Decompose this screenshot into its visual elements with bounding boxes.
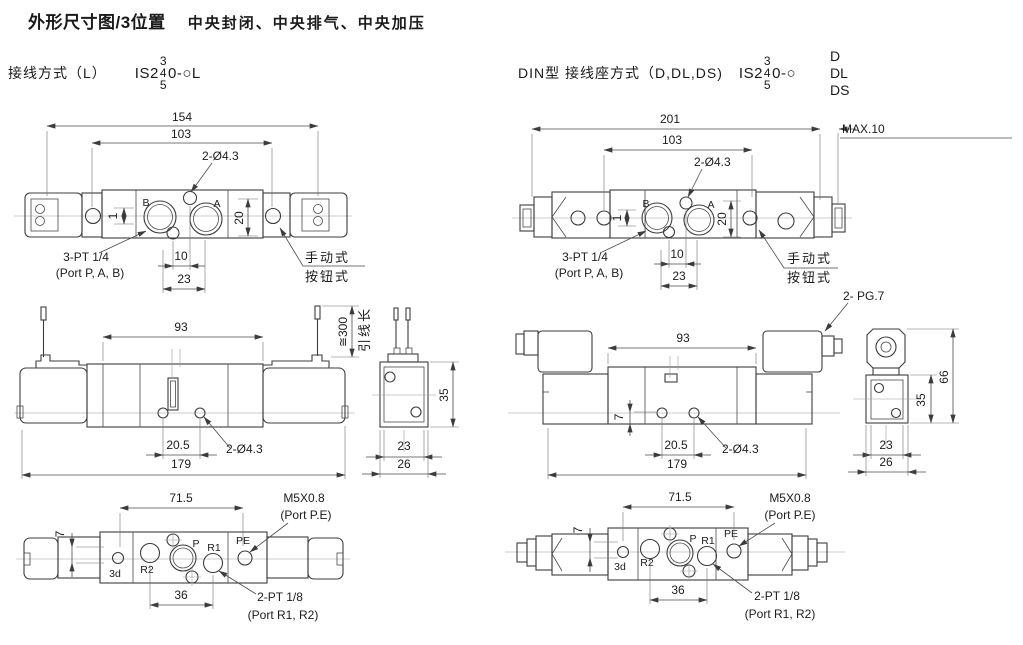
dim-93: 93 — [608, 331, 756, 364]
svg-text:按钮式: 按钮式 — [787, 270, 832, 285]
bottom-view-l-type: 3d R2 P R1 PE 71.5 M5X0.8 (Port P.E) 7 — [16, 491, 350, 622]
valve-body-top-l — [25, 190, 347, 238]
dim-179: 179 — [22, 426, 345, 479]
body-details — [17, 364, 348, 427]
svg-text:35: 35 — [437, 388, 451, 402]
svg-text:93: 93 — [676, 331, 690, 345]
port-b-label: B — [142, 197, 149, 209]
svg-text:7: 7 — [53, 530, 67, 537]
bottom-ports — [618, 528, 742, 577]
dim-93: 93 — [103, 320, 263, 361]
svg-text:201: 201 — [660, 112, 680, 126]
svg-text:2-PT 1/8: 2-PT 1/8 — [257, 590, 303, 604]
port-a-label: A — [707, 199, 714, 211]
dim-7: 7 — [612, 400, 656, 436]
svg-text:2- PG.7: 2- PG.7 — [843, 289, 885, 303]
svg-text:36: 36 — [671, 583, 685, 597]
port-b-label: B — [642, 198, 649, 210]
svg-text:3-PT 1/4: 3-PT 1/4 — [63, 250, 109, 264]
hole-note-2xd4p3: 2-Ø4.3 — [191, 149, 239, 192]
terminal-boxes — [31, 190, 329, 238]
front-view-l-type: 93 ≅300 引线长 20.5 2-Ø4.3 — [14, 306, 459, 479]
svg-text:(Port R1, R2): (Port R1, R2) — [745, 607, 816, 621]
svg-text:103: 103 — [662, 133, 682, 147]
svg-text:(Port P.E): (Port P.E) — [764, 508, 815, 522]
port-p-label: P — [689, 533, 696, 545]
port-3d-label: 3d — [614, 561, 626, 573]
dim-35: 35 — [910, 375, 937, 423]
dimension-drawings: B A 154 103 2-Ø4.3 20 — [0, 0, 1023, 645]
pe-thread-note: M5X0.8 (Port P.E) — [739, 491, 816, 546]
dim-20: 20 — [232, 199, 258, 236]
pe-thread-note: M5X0.8 (Port P.E) — [250, 491, 332, 552]
valve-body-front-l — [20, 355, 345, 427]
svg-text:2-Ø4.3: 2-Ø4.3 — [202, 149, 239, 163]
dim-wire-length: ≅300 引线长 — [322, 306, 372, 357]
dim-23: 23 — [853, 425, 921, 459]
svg-text:2-Ø4.3: 2-Ø4.3 — [694, 155, 731, 169]
side-view-l-type: 35 23 26 — [362, 308, 459, 478]
svg-text:M5X0.8: M5X0.8 — [769, 491, 811, 505]
dim-71p5: 71.5 — [623, 490, 734, 541]
svg-text:154: 154 — [172, 110, 192, 124]
dim-179: 179 — [548, 428, 806, 479]
dim-max10: MAX.10 — [838, 122, 1012, 203]
svg-text:36: 36 — [174, 588, 188, 602]
dim-71p5: 71.5 — [120, 491, 243, 547]
exhaust-thread-note: 2-PT 1/8 (Port R1, R2) — [219, 571, 318, 622]
dim-35: 35 — [430, 362, 459, 427]
svg-text:23: 23 — [879, 438, 893, 452]
svg-text:MAX.10: MAX.10 — [842, 122, 885, 136]
svg-text:(Port R1, R2): (Port R1, R2) — [248, 608, 319, 622]
dim-36: 36 — [650, 560, 707, 604]
svg-text:(Port P.E): (Port P.E) — [280, 508, 331, 522]
svg-text:26: 26 — [397, 457, 411, 471]
port-p-label: P — [192, 538, 199, 550]
svg-text:66: 66 — [937, 370, 951, 384]
hole-note-2xd4p3: 2-Ø4.3 — [688, 155, 731, 197]
svg-text:按钮式: 按钮式 — [305, 269, 350, 284]
svg-text:20: 20 — [715, 212, 729, 226]
svg-text:23: 23 — [397, 439, 411, 453]
svg-text:2-PT 1/8: 2-PT 1/8 — [754, 589, 800, 603]
dim-154: 154 — [47, 110, 318, 196]
dim-103: 103 — [92, 127, 272, 207]
svg-text:2-Ø4.3: 2-Ø4.3 — [722, 442, 759, 456]
svg-text:10: 10 — [174, 249, 188, 263]
top-view-din-type: B A 201 MAX.10 103 2-Ø4.3 — [512, 112, 1012, 290]
port-r1-label: R1 — [207, 542, 221, 554]
svg-text:71.5: 71.5 — [668, 490, 692, 504]
svg-text:1: 1 — [610, 214, 624, 221]
wire-length-label: 引线长 — [357, 307, 372, 352]
svg-text:≅300: ≅300 — [336, 317, 350, 347]
svg-text:26: 26 — [879, 455, 893, 469]
svg-text:1: 1 — [106, 212, 120, 219]
valve-body-bottom-din — [517, 528, 827, 580]
svg-text:10: 10 — [670, 247, 684, 261]
dim-36: 36 — [150, 565, 213, 609]
svg-text:71.5: 71.5 — [169, 491, 193, 505]
port-pe-label: PE — [724, 528, 738, 540]
side-view-din-type: 66 35 23 — [848, 329, 959, 476]
port-r2-label: R2 — [640, 557, 654, 569]
top-view-l-type: B A 154 103 2-Ø4.3 20 — [14, 110, 365, 293]
dim-7: 7 — [571, 526, 618, 572]
svg-text:23: 23 — [672, 269, 686, 283]
valve-body-top-din — [520, 190, 845, 238]
svg-text:7: 7 — [612, 413, 626, 420]
dim-201: 201 — [532, 112, 820, 200]
dim-20p5: 20.5 — [645, 419, 711, 459]
front-view-din-type: 2- PG.7 93 7 20.5 — [508, 289, 959, 479]
svg-text:(Port P, A, B): (Port P, A, B) — [555, 266, 623, 280]
catalog-page: 外形尺寸图/3位置 中央封闭、中央排气、中央加压 接线方式（L） IS2 3 4… — [0, 0, 1023, 645]
port-r1-label: R1 — [701, 535, 715, 547]
svg-text:7: 7 — [571, 526, 585, 533]
ports-top-din — [571, 197, 794, 238]
bottom-ports — [113, 534, 253, 583]
svg-text:20.5: 20.5 — [664, 438, 688, 452]
svg-text:手动式: 手动式 — [787, 251, 832, 266]
svg-text:103: 103 — [171, 127, 191, 141]
svg-text:M5X0.8: M5X0.8 — [283, 491, 325, 505]
svg-text:23: 23 — [177, 272, 191, 286]
port-r2-label: R2 — [140, 564, 154, 576]
end-details — [523, 190, 842, 238]
svg-text:20: 20 — [232, 211, 246, 225]
dim-103: 103 — [604, 133, 752, 210]
dim-20p5: 20.5 — [146, 419, 217, 459]
port-3d-label: 3d — [109, 568, 121, 580]
dim-23: 23 — [163, 240, 205, 293]
svg-text:179: 179 — [171, 457, 191, 471]
svg-text:93: 93 — [174, 320, 188, 334]
hole-note-2xd4p3: 2-Ø4.3 — [204, 417, 263, 456]
svg-text:35: 35 — [914, 393, 928, 407]
pg7-note: 2- PG.7 — [825, 289, 885, 331]
svg-text:2-Ø4.3: 2-Ø4.3 — [226, 442, 263, 456]
svg-text:手动式: 手动式 — [305, 250, 350, 265]
bottom-view-din-type: 3d R2 P R1 PE 71.5 M5X0.8 (Port P.E) 7 — [505, 490, 845, 621]
svg-text:20.5: 20.5 — [166, 438, 190, 452]
body-details — [552, 528, 792, 580]
hole-note-2xd4p3: 2-Ø4.3 — [698, 417, 759, 456]
svg-text:179: 179 — [667, 457, 687, 471]
svg-text:(Port P, A, B): (Port P, A, B) — [56, 266, 124, 280]
dim-66: 66 — [907, 329, 959, 423]
port-a-label: A — [213, 198, 220, 210]
exhaust-thread-note: 2-PT 1/8 (Port R1, R2) — [713, 564, 815, 621]
